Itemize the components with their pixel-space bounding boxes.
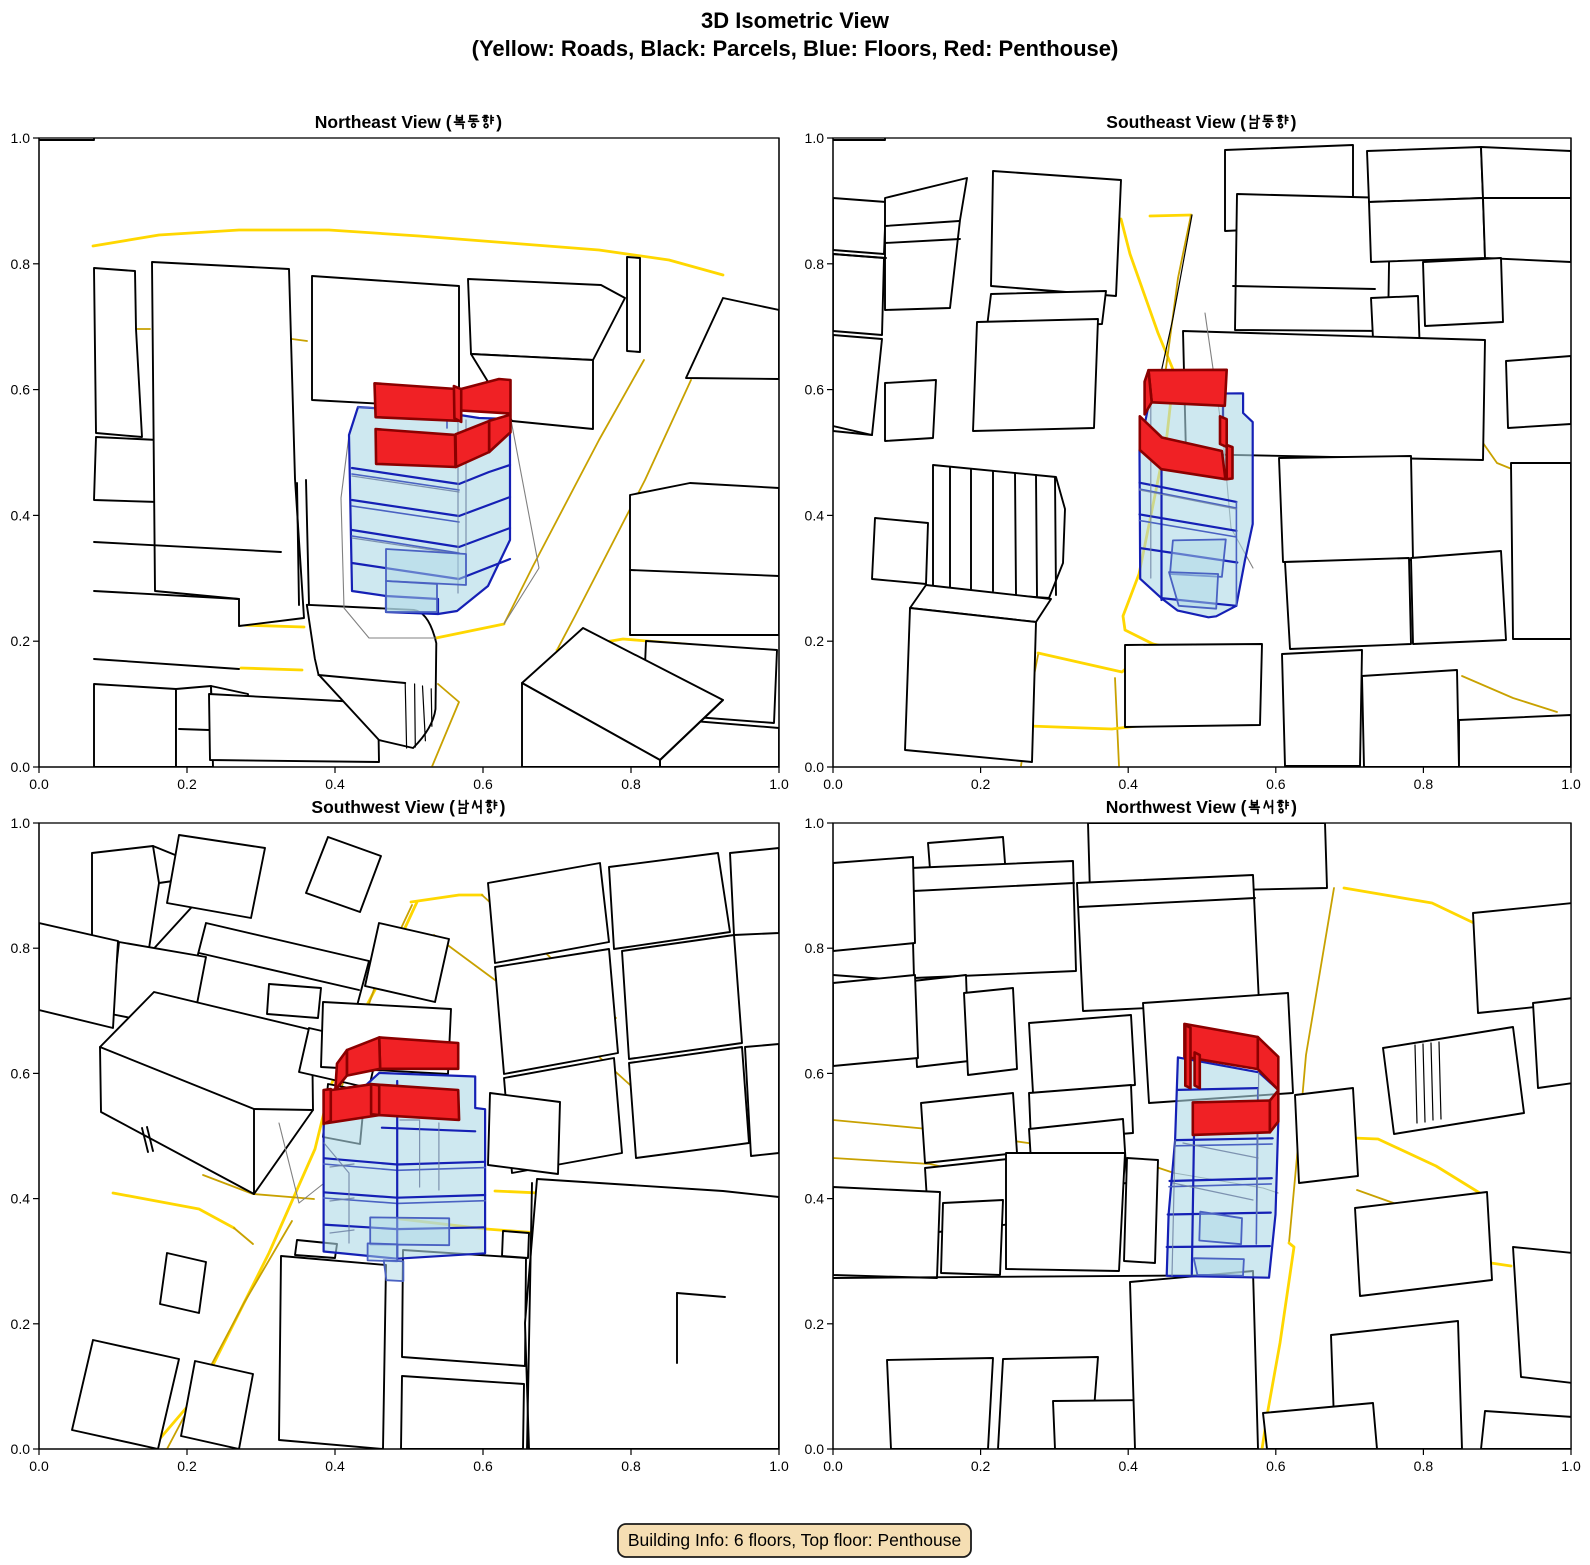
- svg-text:0.6: 0.6: [473, 1458, 493, 1474]
- svg-text:Building Info: 6 floors, Top f: Building Info: 6 floors, Top floor: Pent…: [628, 1530, 961, 1550]
- svg-text:): ): [1291, 112, 1297, 132]
- svg-text:0.0: 0.0: [11, 1441, 31, 1457]
- svg-text:0.6: 0.6: [1266, 776, 1286, 792]
- svg-text:0.2: 0.2: [971, 776, 991, 792]
- svg-text:0.8: 0.8: [1414, 1458, 1434, 1474]
- svg-text:0.6: 0.6: [11, 382, 31, 398]
- svg-text:0.6: 0.6: [11, 1065, 31, 1081]
- svg-text:0.2: 0.2: [971, 1458, 991, 1474]
- svg-text:0.2: 0.2: [177, 1458, 197, 1474]
- svg-text:0.6: 0.6: [473, 776, 493, 792]
- svg-text:3D Isometric View: 3D Isometric View: [701, 8, 890, 33]
- svg-text:0.6: 0.6: [805, 1065, 825, 1081]
- svg-text:1.0: 1.0: [769, 776, 789, 792]
- svg-text:0.0: 0.0: [29, 776, 49, 792]
- svg-text:0.0: 0.0: [805, 759, 825, 775]
- svg-text:0.0: 0.0: [823, 1458, 843, 1474]
- svg-text:): ): [500, 797, 506, 817]
- svg-text:1.0: 1.0: [11, 130, 31, 146]
- svg-text:): ): [496, 112, 502, 132]
- svg-text:0.8: 0.8: [1414, 776, 1434, 792]
- svg-text:1.0: 1.0: [769, 1458, 789, 1474]
- svg-text:1.0: 1.0: [11, 815, 31, 831]
- svg-text:Northeast View (: Northeast View (: [315, 112, 452, 132]
- svg-text:0.4: 0.4: [1118, 1458, 1138, 1474]
- svg-text:Southwest View (: Southwest View (: [311, 797, 455, 817]
- svg-text:0.0: 0.0: [823, 776, 843, 792]
- svg-text:0.4: 0.4: [11, 507, 31, 523]
- svg-text:1.0: 1.0: [1561, 776, 1581, 792]
- svg-text:0.6: 0.6: [805, 382, 825, 398]
- svg-text:1.0: 1.0: [805, 130, 825, 146]
- svg-text:0.8: 0.8: [805, 940, 825, 956]
- svg-text:0.8: 0.8: [621, 776, 641, 792]
- svg-text:): ): [1291, 797, 1297, 817]
- svg-text:0.2: 0.2: [805, 633, 825, 649]
- svg-text:0.2: 0.2: [805, 1316, 825, 1332]
- svg-text:0.2: 0.2: [177, 776, 197, 792]
- svg-text:0.0: 0.0: [11, 759, 31, 775]
- svg-text:0.4: 0.4: [11, 1191, 31, 1207]
- svg-text:0.8: 0.8: [11, 256, 31, 272]
- svg-text:0.8: 0.8: [805, 256, 825, 272]
- svg-text:0.6: 0.6: [1266, 1458, 1286, 1474]
- svg-text:0.0: 0.0: [29, 1458, 49, 1474]
- svg-text:Northwest View (: Northwest View (: [1106, 797, 1247, 817]
- svg-text:Southeast View (: Southeast View (: [1106, 112, 1246, 132]
- svg-text:1.0: 1.0: [1561, 1458, 1581, 1474]
- svg-text:0.4: 0.4: [805, 507, 825, 523]
- svg-text:0.2: 0.2: [11, 633, 31, 649]
- svg-text:0.4: 0.4: [1118, 776, 1138, 792]
- svg-text:0.4: 0.4: [325, 1458, 345, 1474]
- svg-text:0.0: 0.0: [805, 1441, 825, 1457]
- svg-text:1.0: 1.0: [805, 815, 825, 831]
- svg-text:(Yellow: Roads, Black: Parcels: (Yellow: Roads, Black: Parcels, Blue: Fl…: [472, 36, 1119, 61]
- svg-text:0.4: 0.4: [325, 776, 345, 792]
- svg-text:0.2: 0.2: [11, 1316, 31, 1332]
- svg-text:0.4: 0.4: [805, 1191, 825, 1207]
- svg-text:0.8: 0.8: [11, 940, 31, 956]
- svg-text:0.8: 0.8: [621, 1458, 641, 1474]
